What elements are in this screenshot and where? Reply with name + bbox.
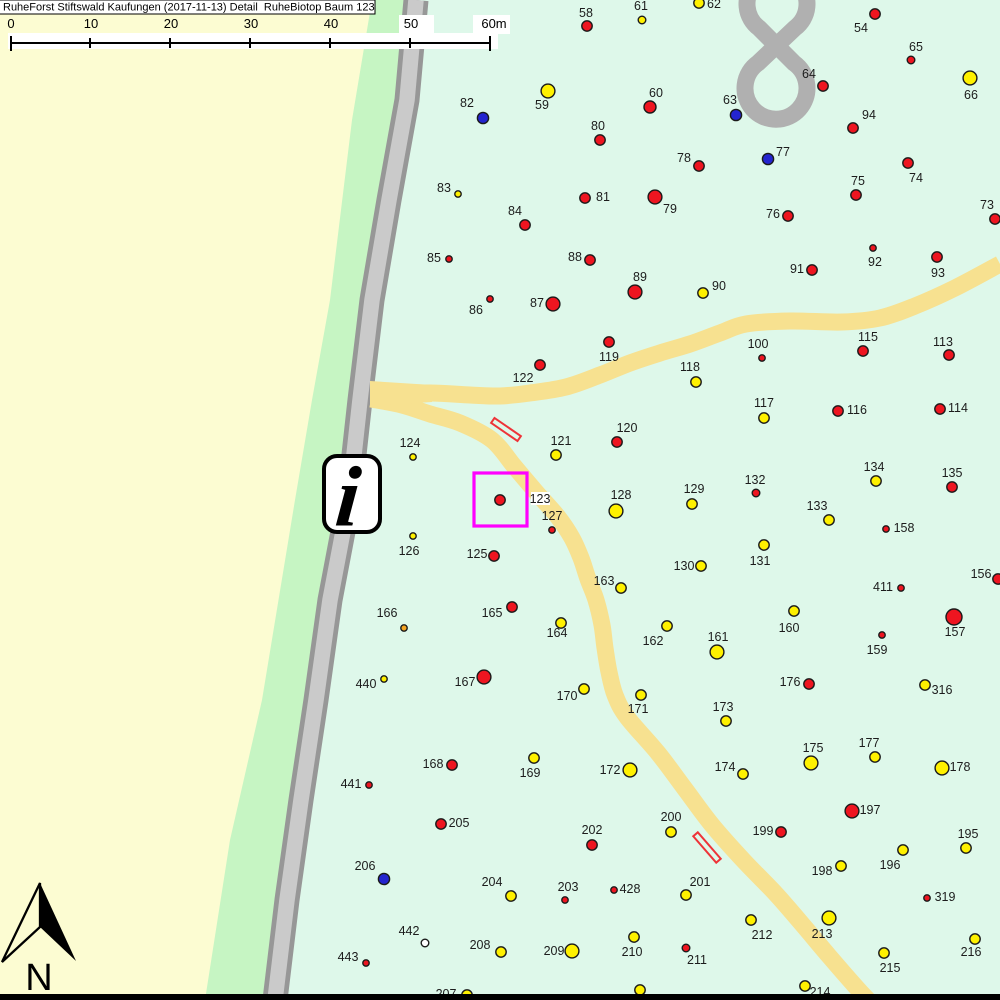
svg-text:59: 59: [535, 98, 549, 112]
svg-text:316: 316: [932, 683, 953, 697]
svg-text:202: 202: [582, 823, 603, 837]
svg-text:81: 81: [596, 190, 610, 204]
svg-text:94: 94: [862, 108, 876, 122]
svg-text:62: 62: [707, 0, 721, 11]
svg-text:174: 174: [715, 760, 736, 774]
svg-text:166: 166: [377, 606, 398, 620]
svg-text:83: 83: [437, 181, 451, 195]
svg-text:440: 440: [356, 677, 377, 691]
svg-text:158: 158: [894, 521, 915, 535]
svg-text:92: 92: [868, 255, 882, 269]
svg-text:79: 79: [663, 202, 677, 216]
svg-text:156: 156: [971, 567, 992, 581]
svg-text:216: 216: [961, 945, 982, 959]
svg-text:124: 124: [400, 436, 421, 450]
svg-text:82: 82: [460, 96, 474, 110]
svg-text:175: 175: [803, 741, 824, 755]
svg-text:60m: 60m: [481, 16, 506, 31]
svg-text:167: 167: [455, 675, 476, 689]
svg-text:135: 135: [942, 466, 963, 480]
svg-text:100: 100: [748, 337, 769, 351]
svg-text:74: 74: [909, 171, 923, 185]
svg-text:N: N: [25, 957, 52, 999]
svg-text:211: 211: [687, 953, 707, 967]
svg-text:76: 76: [766, 207, 780, 221]
svg-text:209: 209: [544, 944, 565, 958]
svg-text:86: 86: [469, 303, 483, 317]
svg-text:63: 63: [723, 93, 737, 107]
svg-text:87: 87: [530, 296, 544, 310]
svg-text:93: 93: [931, 266, 945, 280]
svg-text:122: 122: [513, 371, 534, 385]
svg-text:117: 117: [754, 396, 774, 410]
svg-text:0: 0: [7, 16, 14, 31]
svg-text:88: 88: [568, 250, 582, 264]
svg-text:173: 173: [713, 700, 734, 714]
svg-text:90: 90: [712, 279, 726, 293]
svg-text:75: 75: [851, 174, 865, 188]
svg-text:118: 118: [680, 360, 700, 374]
svg-text:198: 198: [812, 864, 833, 878]
svg-text:197: 197: [860, 803, 881, 817]
svg-text:120: 120: [617, 421, 638, 435]
svg-text:212: 212: [752, 928, 773, 942]
svg-text:208: 208: [470, 938, 491, 952]
svg-text:177: 177: [859, 736, 880, 750]
svg-text:129: 129: [684, 482, 705, 496]
svg-text:61: 61: [634, 0, 648, 13]
svg-text:201: 201: [690, 875, 711, 889]
svg-text:178: 178: [950, 760, 971, 774]
svg-text:78: 78: [677, 151, 691, 165]
svg-text:157: 157: [945, 625, 966, 639]
svg-text:159: 159: [867, 643, 888, 657]
svg-text:91: 91: [790, 262, 804, 276]
svg-text:65: 65: [909, 40, 923, 54]
svg-text:160: 160: [779, 621, 800, 635]
svg-text:77: 77: [776, 145, 790, 159]
svg-text:205: 205: [449, 816, 470, 830]
svg-text:73: 73: [980, 198, 994, 212]
svg-text:164: 164: [547, 626, 568, 640]
svg-text:66: 66: [964, 88, 978, 102]
svg-text:171: 171: [628, 702, 649, 716]
svg-text:215: 215: [880, 961, 901, 975]
svg-text:195: 195: [958, 827, 979, 841]
svg-text:30: 30: [244, 16, 258, 31]
svg-text:58: 58: [579, 6, 593, 20]
svg-text:RuheForst Stiftswald Kaufungen: RuheForst Stiftswald Kaufungen (2017-11-…: [3, 2, 375, 14]
svg-text:165: 165: [482, 606, 503, 620]
svg-text:200: 200: [661, 810, 682, 824]
svg-text:128: 128: [611, 488, 632, 502]
svg-text:134: 134: [864, 460, 885, 474]
svg-text:115: 115: [858, 330, 878, 344]
svg-text:40: 40: [324, 16, 338, 31]
svg-text:80: 80: [591, 119, 605, 133]
svg-text:203: 203: [558, 880, 579, 894]
svg-text:411: 411: [873, 580, 893, 594]
svg-text:121: 121: [551, 434, 572, 448]
svg-text:123: 123: [530, 492, 551, 506]
svg-text:206: 206: [355, 859, 376, 873]
svg-text:126: 126: [399, 544, 420, 558]
svg-text:10: 10: [84, 16, 98, 31]
svg-text:176: 176: [780, 675, 801, 689]
svg-text:210: 210: [622, 945, 643, 959]
svg-text:130: 130: [674, 559, 695, 573]
svg-text:204: 204: [482, 875, 503, 889]
svg-text:161: 161: [708, 630, 729, 644]
svg-text:172: 172: [600, 763, 621, 777]
svg-text:119: 119: [599, 350, 619, 364]
svg-text:441: 441: [341, 777, 362, 791]
svg-text:428: 428: [620, 882, 641, 896]
svg-text:50: 50: [404, 16, 418, 31]
svg-text:170: 170: [557, 689, 578, 703]
svg-text:132: 132: [745, 473, 766, 487]
svg-text:196: 196: [880, 858, 901, 872]
svg-text:125: 125: [467, 547, 488, 561]
svg-text:85: 85: [427, 251, 441, 265]
svg-text:89: 89: [633, 270, 647, 284]
svg-text:116: 116: [847, 403, 867, 417]
svg-text:113: 113: [933, 335, 953, 349]
svg-text:131: 131: [750, 554, 771, 568]
svg-text:163: 163: [594, 574, 615, 588]
svg-text:443: 443: [338, 950, 359, 964]
svg-text:319: 319: [935, 890, 956, 904]
svg-text:114: 114: [948, 401, 968, 415]
svg-text:60: 60: [649, 86, 663, 100]
svg-text:162: 162: [643, 634, 664, 648]
svg-text:213: 213: [812, 927, 833, 941]
svg-text:133: 133: [807, 499, 828, 513]
svg-text:199: 199: [753, 824, 774, 838]
svg-text:442: 442: [399, 924, 420, 938]
svg-text:84: 84: [508, 204, 522, 218]
svg-text:169: 169: [520, 766, 541, 780]
svg-text:54: 54: [854, 21, 868, 35]
svg-text:20: 20: [164, 16, 178, 31]
svg-text:64: 64: [802, 67, 816, 81]
svg-text:168: 168: [423, 757, 444, 771]
svg-text:127: 127: [542, 509, 563, 523]
